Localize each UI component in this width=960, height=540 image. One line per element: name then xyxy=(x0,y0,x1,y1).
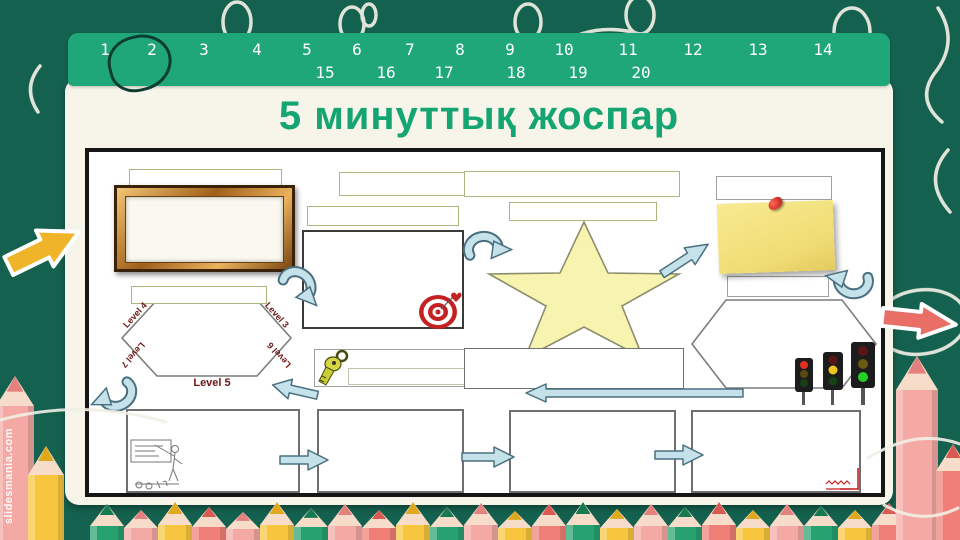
pencil-decoration xyxy=(430,507,464,540)
pencil-decoration xyxy=(634,504,668,540)
header-number[interactable]: 4 xyxy=(252,41,262,59)
pencil-decoration xyxy=(294,508,328,540)
pencil-decoration xyxy=(124,510,158,540)
pencil-decoration xyxy=(362,510,396,540)
header-number[interactable]: 19 xyxy=(568,64,587,82)
pencil-decoration xyxy=(260,502,294,540)
pencil-decoration xyxy=(28,446,64,540)
pencil-decoration xyxy=(532,504,566,540)
pencil-decoration xyxy=(498,511,532,540)
bottom-box-4[interactable] xyxy=(691,410,861,493)
pencil-decoration xyxy=(226,512,260,540)
pencil-decoration xyxy=(600,509,634,540)
label-box-target-title[interactable] xyxy=(307,206,459,226)
pencil-decoration xyxy=(464,503,498,540)
pencil-decoration xyxy=(770,504,804,540)
pencil-decoration xyxy=(838,510,872,540)
header-number[interactable]: 17 xyxy=(434,64,453,82)
label-box-hexagon-right-title[interactable] xyxy=(727,276,829,297)
pencil-decoration xyxy=(736,510,770,540)
header-number[interactable]: 7 xyxy=(405,41,415,59)
header-number[interactable]: 10 xyxy=(554,41,573,59)
header-number[interactable]: 9 xyxy=(505,41,515,59)
header-number[interactable]: 5 xyxy=(302,41,312,59)
pencil-decoration xyxy=(328,504,362,540)
header-number[interactable]: 13 xyxy=(748,41,767,59)
pencil-decoration xyxy=(566,502,600,540)
header-number[interactable]: 12 xyxy=(683,41,702,59)
key-box[interactable] xyxy=(314,349,479,387)
header-number[interactable]: 20 xyxy=(631,64,650,82)
hexagon-right xyxy=(692,300,876,388)
header-number[interactable]: 14 xyxy=(813,41,832,59)
bottom-box-2[interactable] xyxy=(317,409,464,493)
header-number[interactable]: 6 xyxy=(352,41,362,59)
header-number[interactable]: 16 xyxy=(376,64,395,82)
pencil-decoration xyxy=(936,444,960,540)
header-number[interactable]: 3 xyxy=(199,41,209,59)
star-icon xyxy=(489,222,679,358)
label-box-star-title[interactable] xyxy=(464,171,680,197)
pencil-decoration xyxy=(158,502,192,540)
pencil-decoration xyxy=(896,356,938,540)
bottom-box-1[interactable] xyxy=(126,409,300,493)
bottom-box-3[interactable] xyxy=(509,410,676,493)
target-box[interactable] xyxy=(302,230,464,329)
header-number[interactable]: 8 xyxy=(455,41,465,59)
page-title: 5 минуттық жоспар xyxy=(65,94,893,139)
wide-box-under-star[interactable] xyxy=(464,348,684,389)
sticky-note-icon xyxy=(717,200,835,274)
pencil-decoration xyxy=(192,507,226,540)
pencil-decoration xyxy=(90,504,124,540)
picture-frame-icon xyxy=(114,185,295,272)
header-number[interactable]: 11 xyxy=(618,41,637,59)
pencil-decoration xyxy=(668,507,702,540)
pencil-decoration xyxy=(804,506,838,540)
watermark: slidesmania.com xyxy=(3,428,15,524)
hexagon-level-label: Level 5 xyxy=(177,377,247,389)
header-number[interactable]: 15 xyxy=(315,64,334,82)
number-bar: 1234567891011121314 151617181920 xyxy=(68,33,890,86)
key-box-inner-field[interactable] xyxy=(348,368,477,385)
label-box-star-sub[interactable] xyxy=(509,202,657,221)
label-box-top-middle[interactable] xyxy=(339,172,467,196)
slide: 1234567891011121314 151617181920 5 минут… xyxy=(0,0,960,540)
plan-diagram: Level 4 Level 3 Level 7 Level 5 Level 6 xyxy=(85,148,885,497)
header-number[interactable]: 18 xyxy=(506,64,525,82)
pencil-decoration xyxy=(396,502,430,540)
pencil-decoration xyxy=(702,502,736,540)
